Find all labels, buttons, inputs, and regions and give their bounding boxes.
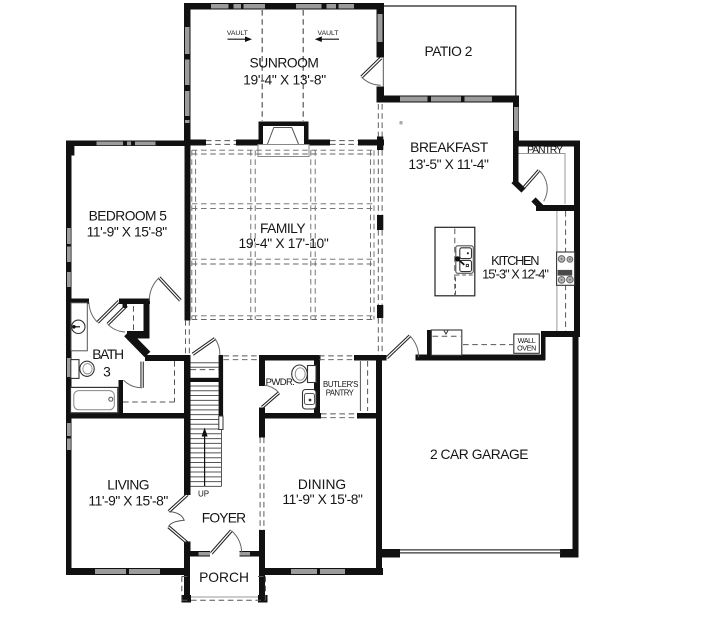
svg-text:PORCH: PORCH [199, 570, 249, 585]
svg-text:15'-3" X 12'-4": 15'-3" X 12'-4" [482, 267, 548, 282]
svg-text:PATIO 2: PATIO 2 [425, 44, 472, 59]
svg-text:19'-4" X 13'-8": 19'-4" X 13'-8" [243, 73, 326, 88]
svg-text:BATH: BATH [92, 347, 123, 362]
svg-text:FAMILY: FAMILY [260, 221, 305, 236]
svg-text:VAULT: VAULT [318, 30, 339, 37]
svg-text:11'-9" X 15'-8": 11'-9" X 15'-8" [282, 492, 363, 507]
svg-text:11'-9" X 15'-8": 11'-9" X 15'-8" [87, 225, 168, 240]
svg-text:BREAKFAST: BREAKFAST [410, 140, 489, 155]
svg-text:VAULT: VAULT [227, 30, 248, 37]
svg-text:DINING: DINING [298, 477, 346, 492]
svg-text:UP: UP [198, 490, 209, 499]
svg-text:LIVING: LIVING [107, 478, 149, 493]
svg-text:SUNROOM: SUNROOM [250, 56, 319, 71]
svg-text:BEDROOM 5: BEDROOM 5 [89, 208, 168, 223]
svg-text:3: 3 [103, 365, 111, 380]
svg-text:PANTRY: PANTRY [326, 389, 355, 398]
svg-text:PANTRY: PANTRY [527, 144, 563, 156]
svg-text:FOYER: FOYER [202, 511, 246, 526]
svg-text:11'-9" X 15'-8": 11'-9" X 15'-8" [88, 494, 168, 509]
svg-text:2 CAR GARAGE: 2 CAR GARAGE [430, 447, 528, 462]
svg-text:13'-5" X 11'-4": 13'-5" X 11'-4" [408, 157, 489, 172]
svg-text:19'-4" X 17'-10": 19'-4" X 17'-10" [238, 236, 328, 251]
svg-text:PWDR.: PWDR. [266, 377, 295, 388]
svg-text:OVEN: OVEN [517, 344, 536, 353]
